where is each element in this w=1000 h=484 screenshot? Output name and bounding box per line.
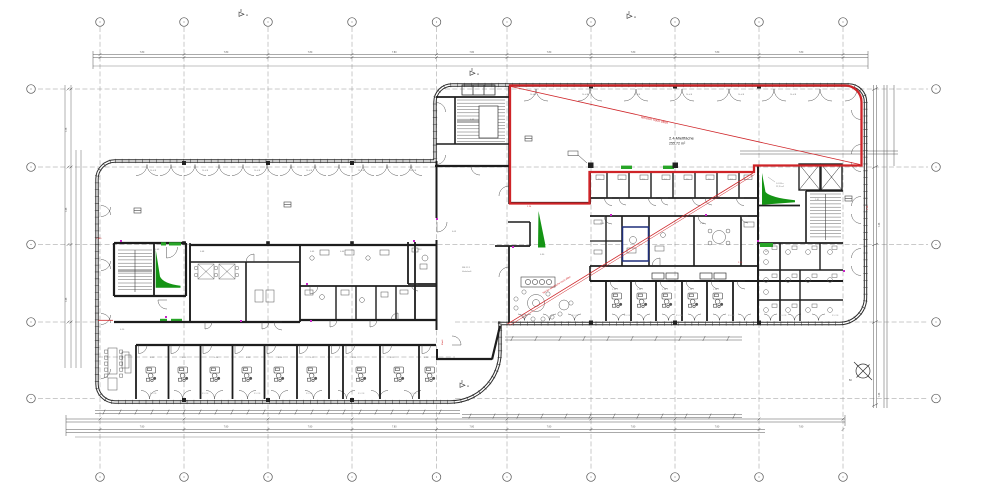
- svg-text:7.80: 7.80: [799, 52, 804, 54]
- svg-text:3.5 / 24: 3.5 / 24: [358, 393, 364, 395]
- svg-text:0.16: 0.16: [278, 357, 283, 359]
- svg-text:3.5 / 24: 3.5 / 24: [306, 393, 312, 395]
- svg-text:0.14: 0.14: [214, 357, 219, 359]
- svg-text:0.15: 0.15: [246, 357, 251, 359]
- svg-text:24 oFB: 24 oFB: [634, 94, 641, 96]
- svg-text:WC: WC: [418, 249, 422, 251]
- svg-text:1.14: 1.14: [662, 289, 667, 291]
- svg-text:7.80: 7.80: [224, 427, 229, 429]
- svg-text:3.5 / 24: 3.5 / 24: [572, 315, 578, 317]
- svg-text:7.80: 7.80: [140, 427, 145, 429]
- svg-text:A: A: [477, 72, 479, 76]
- svg-text:7.80: 7.80: [715, 427, 720, 429]
- svg-text:3.5 / 24: 3.5 / 24: [780, 315, 786, 317]
- svg-text:24 oFB: 24 oFB: [306, 170, 313, 172]
- svg-text:7.80: 7.80: [799, 427, 804, 429]
- svg-text:7.80: 7.80: [308, 427, 313, 429]
- svg-text:0.17: 0.17: [310, 357, 315, 359]
- svg-text:7.80: 7.80: [470, 52, 475, 54]
- svg-text:3.5 / 24: 3.5 / 24: [728, 315, 734, 317]
- svg-text:1.16: 1.16: [713, 289, 718, 291]
- svg-text:3.5 / 24: 3.5 / 24: [254, 393, 260, 395]
- svg-text:0.04: 0.04: [340, 251, 345, 253]
- svg-text:0.19: 0.19: [390, 357, 395, 359]
- svg-text:3.5 / 24: 3.5 / 24: [410, 393, 416, 395]
- svg-text:7.80: 7.80: [140, 52, 145, 54]
- svg-text:7.80: 7.80: [392, 52, 397, 54]
- svg-text:1.24: 1.24: [527, 206, 532, 208]
- svg-text:0.18: 0.18: [352, 357, 357, 359]
- svg-text:A: A: [467, 384, 469, 388]
- svg-text:0.09: 0.09: [155, 249, 160, 251]
- svg-text:22,15 m2: 22,15 m2: [776, 186, 784, 188]
- svg-text:255,72 m²: 255,72 m²: [669, 142, 686, 146]
- svg-text:Verkehrsfl.: Verkehrsfl.: [462, 270, 472, 273]
- svg-text:WE 12.1: WE 12.1: [462, 267, 471, 269]
- svg-text:0.20: 0.20: [424, 357, 429, 359]
- svg-text:7.48: 7.48: [66, 297, 68, 302]
- svg-text:5.38: 5.38: [867, 205, 869, 210]
- svg-text:7.46: 7.46: [879, 222, 881, 227]
- svg-text:0.08: 0.08: [200, 251, 205, 253]
- svg-text:Bereich noch offen: Bereich noch offen: [641, 115, 669, 125]
- svg-text:3.5 / 24: 3.5 / 24: [832, 315, 838, 317]
- svg-text:7.80: 7.80: [715, 52, 720, 54]
- svg-text:M: M: [849, 378, 852, 382]
- svg-text:7.48: 7.48: [66, 207, 68, 212]
- svg-text:3.5 / 24: 3.5 / 24: [202, 393, 208, 395]
- svg-text:3.5 / 24: 3.5 / 24: [150, 393, 156, 395]
- svg-text:1.15: 1.15: [688, 289, 693, 291]
- svg-text:7.80: 7.80: [631, 52, 636, 54]
- svg-text:0.30: 0.30: [540, 254, 545, 256]
- svg-text:2.4 Mietfläche: 2.4 Mietfläche: [669, 136, 695, 141]
- svg-text:24 oFB: 24 oFB: [686, 94, 693, 96]
- svg-text:24 oFB: 24 oFB: [150, 170, 157, 172]
- svg-text:7.80: 7.80: [308, 52, 313, 54]
- svg-text:0.13: 0.13: [182, 357, 187, 359]
- svg-text:WC: WC: [765, 251, 769, 253]
- svg-text:7.38: 7.38: [66, 127, 68, 132]
- svg-text:24 oFB: 24 oFB: [530, 94, 537, 96]
- svg-text:1.13: 1.13: [637, 289, 642, 291]
- svg-text:5.385: 5.385: [96, 238, 102, 240]
- svg-text:7.80: 7.80: [392, 427, 397, 429]
- svg-text:3.5 / 24: 3.5 / 24: [520, 315, 526, 317]
- svg-text:24 oFB: 24 oFB: [358, 170, 365, 172]
- svg-text:A: A: [246, 13, 248, 17]
- svg-text:24 oFB: 24 oFB: [790, 94, 797, 96]
- svg-text:7.80: 7.80: [547, 52, 552, 54]
- svg-text:24 oFB: 24 oFB: [254, 170, 261, 172]
- svg-text:0.10: 0.10: [120, 329, 125, 331]
- svg-text:2.46: 2.46: [738, 262, 743, 264]
- svg-text:7.80: 7.80: [547, 427, 552, 429]
- svg-text:1.12: 1.12: [612, 289, 617, 291]
- svg-text:24 oFB: 24 oFB: [202, 170, 209, 172]
- svg-text:Teil der Mietfläche noch offen: Teil der Mietfläche noch offen: [542, 275, 572, 295]
- svg-text:3.5 / 24: 3.5 / 24: [676, 315, 682, 317]
- svg-text:3.5 / 24: 3.5 / 24: [624, 315, 630, 317]
- svg-text:0.05: 0.05: [310, 251, 315, 253]
- svg-text:24 oFB: 24 oFB: [582, 94, 589, 96]
- svg-text:24 oFB: 24 oFB: [410, 170, 417, 172]
- svg-text:7.46: 7.46: [879, 392, 881, 397]
- svg-text:1.05: 1.05: [600, 223, 605, 225]
- svg-text:7.80: 7.80: [470, 427, 475, 429]
- svg-text:7.80: 7.80: [631, 427, 636, 429]
- svg-text:0.12: 0.12: [150, 357, 155, 359]
- svg-text:Mietfl.: Mietfl.: [441, 339, 444, 345]
- svg-text:0.03: 0.03: [452, 231, 457, 233]
- svg-text:1.01 Flur: 1.01 Flur: [776, 182, 784, 185]
- svg-text:24 oFB: 24 oFB: [738, 94, 745, 96]
- svg-text:7.80: 7.80: [224, 52, 229, 54]
- svg-text:A: A: [634, 15, 636, 19]
